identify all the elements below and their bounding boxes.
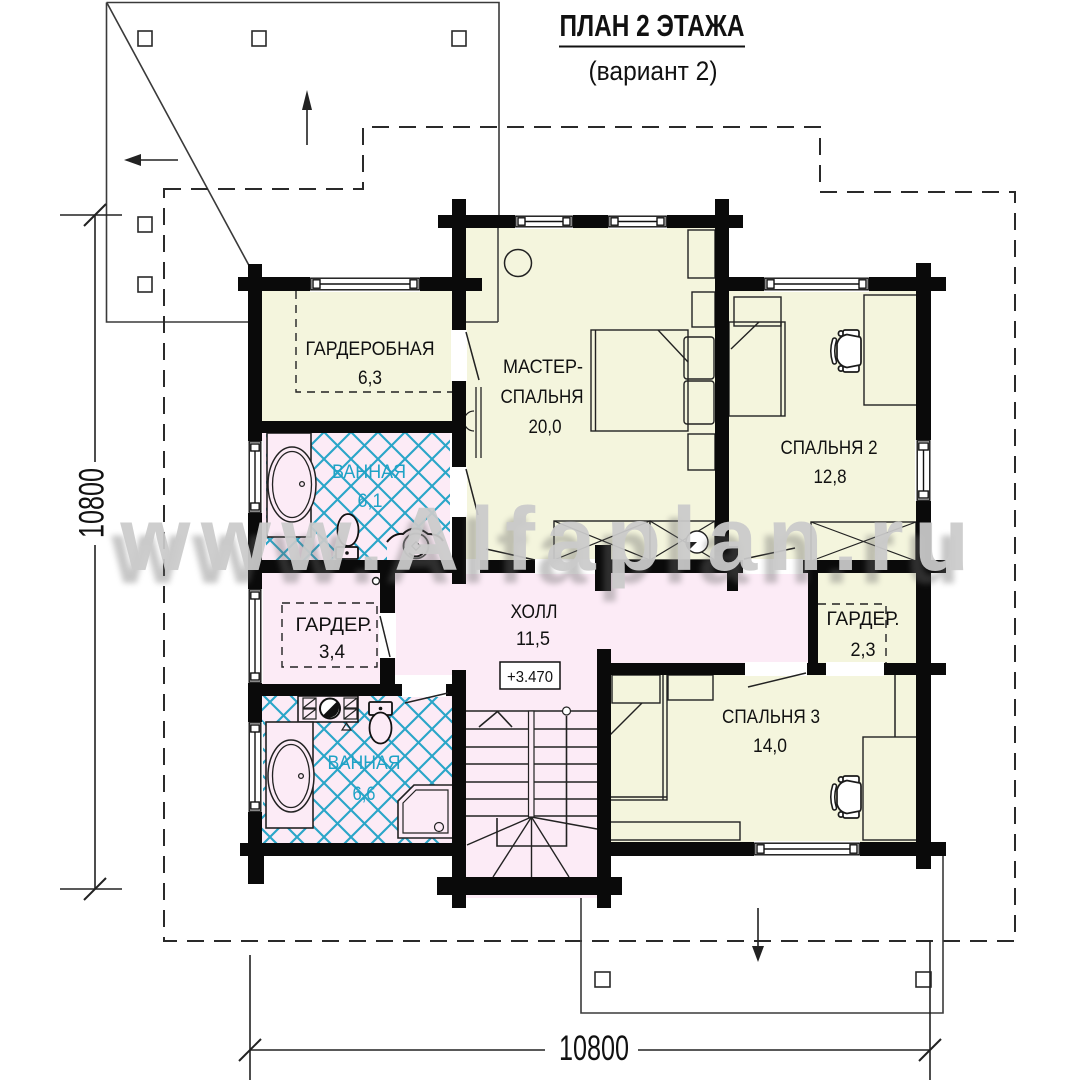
svg-text:СПАЛЬНЯ 3: СПАЛЬНЯ 3 — [722, 706, 820, 728]
svg-text:6,6: 6,6 — [353, 783, 376, 805]
svg-text:20,0: 20,0 — [529, 416, 562, 438]
svg-text:+3.470: +3.470 — [507, 669, 553, 686]
svg-text:www.Alfaplan.ru: www.Alfaplan.ru — [119, 490, 979, 590]
svg-text:СПАЛЬНЯ 2: СПАЛЬНЯ 2 — [781, 437, 878, 459]
svg-text:10800: 10800 — [559, 1029, 629, 1068]
svg-text:ВАННАЯ: ВАННАЯ — [332, 461, 406, 483]
svg-text:СПАЛЬНЯ: СПАЛЬНЯ — [501, 386, 584, 408]
svg-text:ВАННАЯ: ВАННАЯ — [328, 752, 401, 774]
svg-text:3,4: 3,4 — [319, 641, 345, 663]
svg-text:(вариант 2): (вариант 2) — [589, 56, 718, 86]
svg-text:12,8: 12,8 — [814, 466, 847, 488]
svg-text:ГАРДЕРОБНАЯ: ГАРДЕРОБНАЯ — [306, 338, 435, 360]
svg-text:ГАРДЕР.: ГАРДЕР. — [296, 614, 373, 636]
svg-text:6,3: 6,3 — [358, 367, 382, 389]
svg-text:14,0: 14,0 — [753, 735, 787, 757]
svg-text:2,3: 2,3 — [851, 639, 876, 661]
svg-text:ПЛАН 2 ЭТАЖА: ПЛАН 2 ЭТАЖА — [560, 8, 745, 43]
svg-text:МАСТЕР-: МАСТЕР- — [503, 356, 583, 378]
svg-text:ХОЛЛ: ХОЛЛ — [511, 601, 558, 623]
svg-text:10800: 10800 — [73, 468, 112, 538]
svg-text:ГАРДЕР.: ГАРДЕР. — [827, 608, 900, 630]
svg-text:11,5: 11,5 — [516, 628, 550, 650]
